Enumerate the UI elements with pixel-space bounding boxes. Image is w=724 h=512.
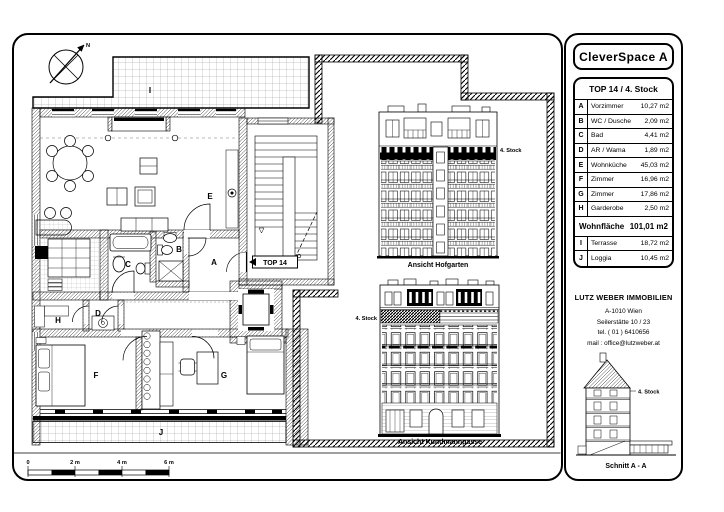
room-area: 10,27 m2 [641,100,672,114]
table-row: FZimmer16,96 m2 [575,173,672,188]
table-row: ITerrasse18,72 m2 [575,237,672,252]
table-row: CBad4,41 m2 [575,129,672,144]
room-name: Zimmer [588,188,641,202]
plan-sheet: CleverSpace A TOP 14 / 4. Stock AVorzimm… [0,0,724,512]
contact-block: LUTZ WEBER IMMOBILIEN A-1010 Wien Seiler… [566,293,681,349]
room-area: 1,89 m2 [644,144,672,158]
room-area: 18,72 m2 [641,237,672,251]
room-key: E [575,158,588,172]
room-name: Wohnküche [588,158,641,172]
info-sidebar: CleverSpace A TOP 14 / 4. Stock AVorzimm… [564,33,683,481]
contact-address: A-1010 Wien [566,307,681,318]
room-key: F [575,173,588,187]
table-row: DAR / Wama1,89 m2 [575,144,672,159]
room-name: WC / Dusche [588,115,644,129]
room-area: 17,86 m2 [641,188,672,202]
table-row: EWohnküche45,03 m2 [575,158,672,173]
table-row: BWC / Dusche2,09 m2 [575,115,672,130]
brand-box: CleverSpace A [573,43,674,70]
total-area: 101,01 m2 [630,222,668,231]
drawing-area-frame [12,33,563,481]
brand-title: CleverSpace A [579,50,668,64]
room-name: Bad [588,129,644,143]
total-row: Wohnfläche101,01 m2 [575,217,672,237]
table-row: AVorzimmer10,27 m2 [575,100,672,115]
table-row: JLoggia10,45 m2 [575,251,672,266]
room-key: A [575,100,588,114]
room-key: H [575,202,588,216]
room-area: 2,09 m2 [644,115,672,129]
room-area: 45,03 m2 [641,158,672,172]
room-name: Loggia [588,251,641,266]
room-name: Vorzimmer [588,100,641,114]
room-area: 4,41 m2 [644,129,672,143]
room-name: Garderobe [588,202,644,216]
total-label: Wohnfläche [579,222,624,231]
room-name: AR / Wama [588,144,644,158]
room-name: Terrasse [588,237,641,251]
unit-header: TOP 14 / 4. Stock [575,79,672,100]
contact-street: Seilerstätte 10 / 23 [566,318,681,329]
contact-tel: tel. ( 01 ) 6410656 [566,328,681,339]
room-key: C [575,129,588,143]
contact-company: LUTZ WEBER IMMOBILIEN [566,293,681,302]
room-key: D [575,144,588,158]
table-row: GZimmer17,86 m2 [575,188,672,203]
room-key: B [575,115,588,129]
contact-mail: mail : office@lutzweber.at [566,339,681,350]
room-area: 2,50 m2 [644,202,672,216]
room-table: TOP 14 / 4. Stock AVorzimmer10,27 m2 BWC… [573,77,674,268]
room-key: J [575,251,588,266]
table-row: HGarderobe2,50 m2 [575,202,672,217]
room-key: I [575,237,588,251]
room-key: G [575,188,588,202]
room-name: Zimmer [588,173,641,187]
room-area: 10,45 m2 [641,251,672,266]
room-area: 16,96 m2 [641,173,672,187]
